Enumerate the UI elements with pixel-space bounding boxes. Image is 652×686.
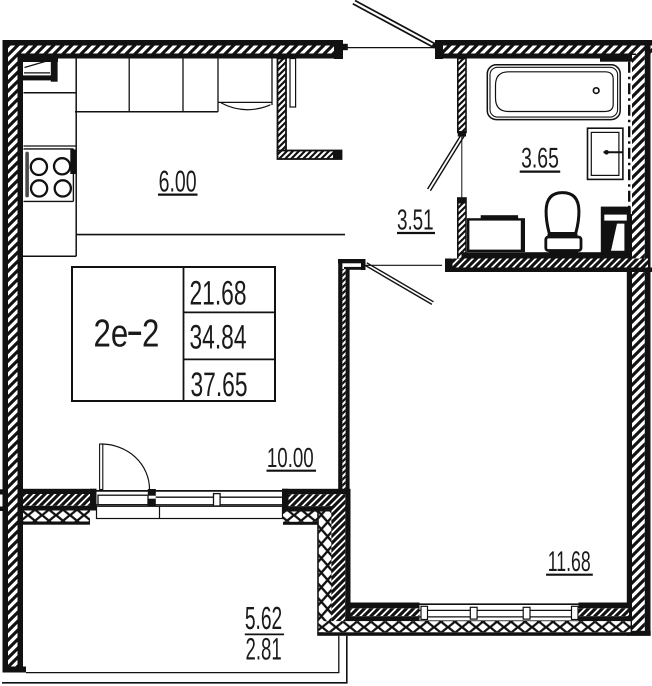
svg-text:2.81: 2.81: [245, 632, 281, 667]
svg-text:37.65: 37.65: [191, 366, 248, 404]
svg-text:10.00: 10.00: [267, 442, 314, 473]
svg-text:34.84: 34.84: [190, 318, 247, 356]
svg-text:2e: 2e: [94, 312, 129, 355]
svg-text:3.65: 3.65: [521, 143, 559, 175]
svg-text:3.51: 3.51: [397, 204, 434, 236]
svg-text:2: 2: [142, 312, 159, 355]
svg-text:11.68: 11.68: [548, 546, 591, 578]
svg-text:21.68: 21.68: [190, 274, 247, 312]
